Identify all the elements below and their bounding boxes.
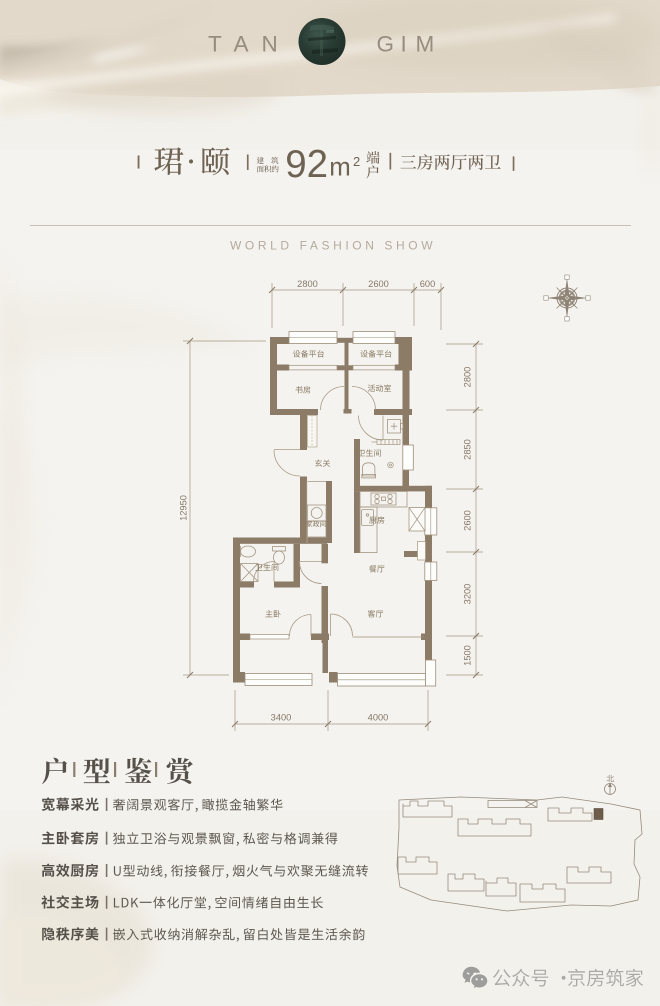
svg-text:3200: 3200 [463, 584, 473, 605]
svg-text:2800: 2800 [297, 279, 318, 289]
svg-text:2800: 2800 [463, 367, 473, 388]
svg-text:2: 2 [353, 154, 360, 169]
svg-text:600: 600 [420, 279, 436, 289]
svg-text:I: I [401, 32, 407, 57]
svg-text:12950: 12950 [179, 495, 189, 521]
svg-text:M: M [416, 32, 435, 57]
svg-text:WORLD FASHION SHOW: WORLD FASHION SHOW [230, 239, 436, 253]
svg-text:T: T [208, 32, 222, 57]
svg-text:N: N [262, 32, 278, 57]
svg-text:3400: 3400 [271, 713, 292, 723]
svg-text:2600: 2600 [368, 279, 389, 289]
svg-text:G: G [377, 32, 395, 57]
svg-text:A: A [234, 32, 249, 57]
svg-text:1500: 1500 [463, 645, 473, 666]
svg-text:2850: 2850 [463, 439, 473, 460]
svg-text:m: m [329, 152, 351, 182]
svg-text:92: 92 [285, 143, 328, 186]
svg-text:4000: 4000 [368, 713, 389, 723]
svg-text:2600: 2600 [463, 510, 473, 531]
